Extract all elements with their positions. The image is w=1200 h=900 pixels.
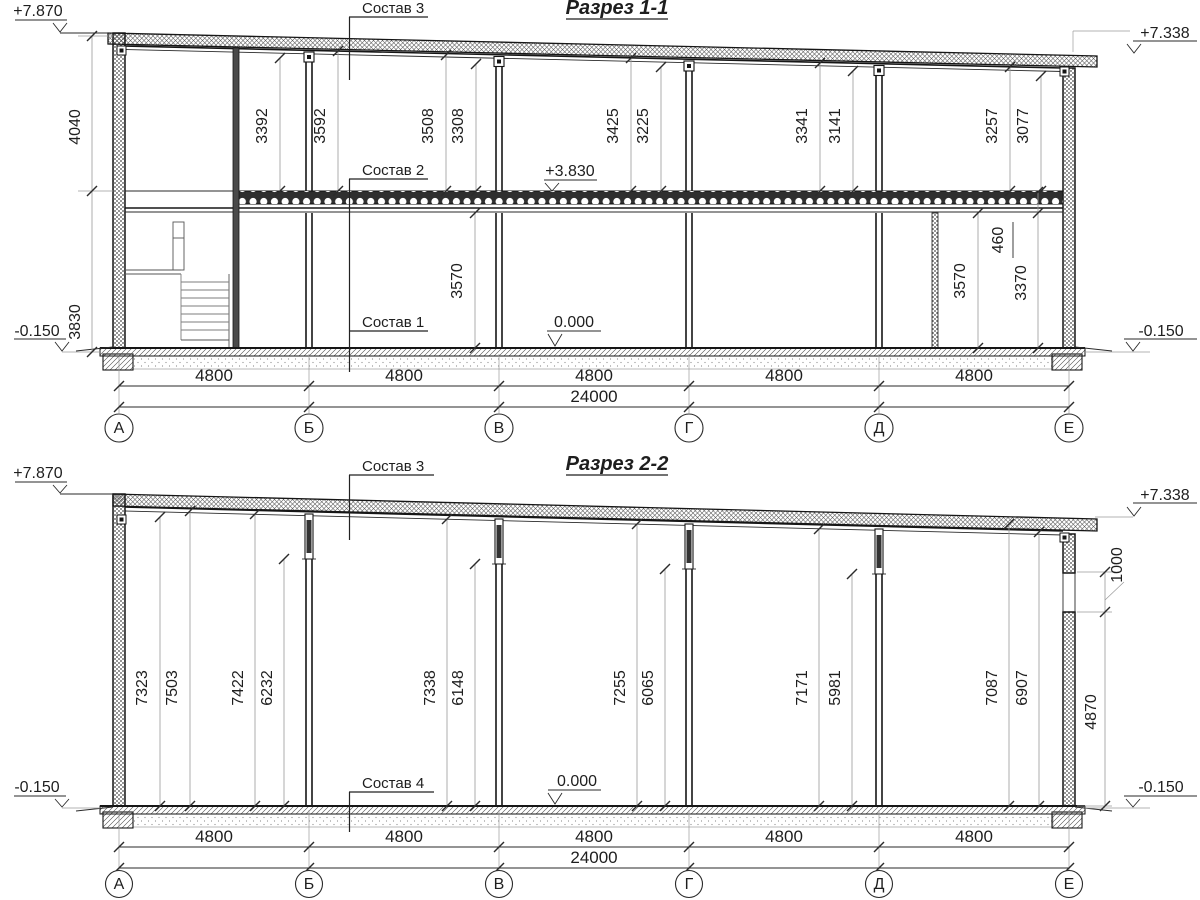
s2-total-dim: 24000 [570,848,617,867]
s1-elev-top-left: +7.870 [13,3,113,33]
s1-axis-v: В [494,420,505,437]
svg-text:7171: 7171 [794,670,811,706]
svg-text:-0.150: -0.150 [14,323,59,340]
s1-label-sostav2: Состав 2 [362,162,424,179]
svg-text:-0.150: -0.150 [1138,779,1183,796]
s1-title: Разрез 1-1 [566,0,669,19]
s2-elev-zero: 0.000 [548,773,601,804]
svg-text:6232: 6232 [259,670,276,706]
svg-text:6148: 6148 [450,670,467,706]
s1-axis-g: Г [685,420,694,437]
s1-ground-slab [100,348,1085,356]
svg-text:7338: 7338 [422,670,439,706]
svg-text:-0.150: -0.150 [14,779,59,796]
s1-axis-e: Е [1064,420,1075,437]
svg-text:4800: 4800 [195,366,233,385]
svg-text:+3.830: +3.830 [545,163,594,180]
s2-elev-top-right: +7.338 [1095,487,1197,517]
svg-text:3508: 3508 [420,108,437,144]
svg-text:5981: 5981 [827,670,844,706]
s1-wall-right [1063,68,1075,348]
s1-left-dims: 4040 3830 [67,31,113,357]
s1-axis-bubbles: А Б В Г Д Е [105,414,1083,442]
section-drawing: Разрез 1-1 Состав 3 Состав 2 Состав 1 +7… [0,0,1200,900]
s1-stair-wall [233,48,239,348]
s1-dim-3570-b: 3570 [952,263,969,299]
s1-elev-zero: 0.000 [547,314,601,346]
s2-axis-bubbles: А Б В Г Д Е [106,871,1083,898]
svg-text:3141: 3141 [827,108,844,144]
s1-dim-3370: 3370 [1013,265,1030,301]
svg-text:0.000: 0.000 [557,773,597,790]
s1-partition [932,213,938,348]
svg-text:4800: 4800 [575,366,613,385]
svg-text:7503: 7503 [164,670,181,706]
svg-text:7087: 7087 [984,670,1001,706]
s2-bearing-right [1060,533,1069,542]
section-2-2: Разрез 2-2 Состав 3 Состав 4 +7.870 +7.3… [13,453,1197,898]
s1-axis-d: Д [874,420,885,437]
s1-bearing-left [117,46,126,55]
s1-bearing-right [1060,67,1069,76]
s2-axis-e: Е [1064,876,1075,893]
svg-text:4800: 4800 [195,827,233,846]
svg-text:0.000: 0.000 [554,314,594,331]
svg-text:7422: 7422 [230,670,247,706]
svg-text:+7.338: +7.338 [1140,487,1189,504]
svg-text:4800: 4800 [385,366,423,385]
s2-dim-1000: 1000 [1109,547,1126,583]
svg-text:3341: 3341 [794,108,811,144]
s1-dim-3570-a: 3570 [449,263,466,299]
s1-total-dim: 24000 [570,387,617,406]
svg-text:6065: 6065 [640,670,657,706]
s2-right-dims: 1000 4870 [1077,547,1126,811]
s2-roof-slab [113,494,1097,531]
svg-text:+7.338: +7.338 [1140,25,1189,42]
s2-title: Разрез 2-2 [566,453,669,475]
svg-text:3392: 3392 [254,108,271,144]
svg-text:+7.870: +7.870 [13,465,62,482]
s2-axis-b: Б [304,876,315,893]
s2-label-sostav3: Состав 3 [362,458,424,475]
svg-text:4800: 4800 [955,827,993,846]
svg-text:6907: 6907 [1014,670,1031,706]
s2-elev-top-left: +7.870 [13,465,113,494]
s2-bearing-left [117,515,126,524]
section-1-1: Разрез 1-1 Состав 3 Состав 2 Состав 1 +7… [13,0,1197,442]
svg-text:4800: 4800 [955,366,993,385]
s2-axis-a: А [114,876,125,893]
s2-axis-d: Д [874,876,885,893]
svg-text:3225: 3225 [635,108,652,144]
s2-columns [302,514,886,806]
svg-text:4800: 4800 [765,827,803,846]
svg-text:3308: 3308 [450,108,467,144]
svg-text:4800: 4800 [575,827,613,846]
s2-axis-g: Г [685,876,694,893]
s1-stairs [125,222,229,348]
svg-text:3257: 3257 [984,108,1001,144]
svg-text:3425: 3425 [605,108,622,144]
s2-elev-bottom-right: -0.150 [1085,779,1197,808]
s1-roof-slab [108,33,1097,67]
s2-dim-4870: 4870 [1083,694,1100,730]
s1-dim-4040: 4040 [67,109,84,145]
s1-dim-3830: 3830 [67,304,84,340]
svg-text:4800: 4800 [385,827,423,846]
svg-text:3592: 3592 [312,108,329,144]
s1-label-sostav1: Состав 1 [362,314,424,331]
s1-elev-top-right: +7.338 [1073,25,1197,53]
s1-axis-a: А [114,420,125,437]
s1-elev-bottom-left: -0.150 [14,323,100,352]
s2-label-sostav4: Состав 4 [362,775,424,792]
s1-dim-460: 460 [990,227,1007,254]
svg-text:7323: 7323 [134,670,151,706]
s1-wall-left [113,33,125,348]
s2-elev-bottom-left: -0.150 [14,779,100,808]
s1-elev-bottom-right: -0.150 [1085,323,1197,352]
s2-wall-left [113,494,125,806]
s2-ground-slab [100,806,1085,814]
svg-text:7255: 7255 [612,670,629,706]
svg-text:+7.870: +7.870 [13,3,62,20]
s2-base-layer [133,814,1053,827]
s2-axis-v: В [494,876,505,893]
s1-elev-mid-floor: +3.830 [544,163,597,191]
s2-height-dims: 7323 7503 7422 6232 7338 6148 7255 6065 … [134,506,1044,811]
s1-axis-b: Б [304,420,315,437]
svg-text:-0.150: -0.150 [1138,323,1183,340]
svg-text:4800: 4800 [765,366,803,385]
s2-wall-right-lower [1063,612,1075,806]
svg-text:3077: 3077 [1015,108,1032,144]
s1-label-sostav3: Состав 3 [362,0,424,17]
